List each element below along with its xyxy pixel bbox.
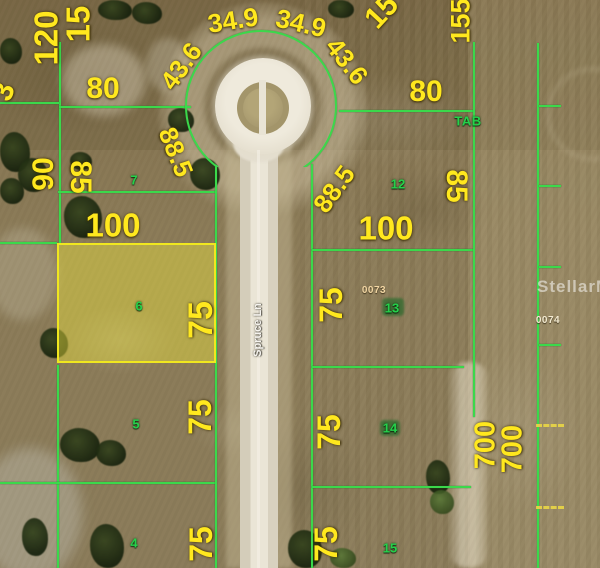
lot-tick — [539, 105, 561, 107]
lot-line-80-right — [339, 110, 475, 112]
dimension-label: 15 — [62, 6, 95, 43]
lot-line-road-west — [215, 165, 217, 568]
dimension-label: 75 — [310, 526, 342, 562]
tree — [0, 38, 22, 64]
lot-number-6: 6 — [135, 300, 142, 313]
tree — [98, 0, 132, 20]
lot-number-14: 14 — [383, 422, 397, 435]
lot-line-left-vertical-lower — [57, 365, 59, 568]
aerial-plat-map: 120 15 3 34.9 34.9 43.6 43.6 88.5 88.5 1… — [0, 0, 600, 568]
tree — [90, 524, 124, 568]
tab-marker: TAB — [454, 115, 481, 128]
parcel-id-0074: 0074 — [536, 316, 560, 326]
lot-number-13: 13 — [385, 302, 399, 315]
dimension-label: 85 — [441, 169, 471, 202]
lot-number-4: 4 — [130, 537, 137, 550]
parcel-id-0073: 0073 — [362, 286, 386, 296]
tree — [0, 178, 24, 204]
lot-line-west-edge-mid — [0, 242, 57, 244]
stellar-mls-watermark: StellarMLS — [537, 277, 600, 297]
lot-line-right-vertical-inner — [473, 42, 475, 417]
lot-number-12: 12 — [391, 178, 405, 191]
lot-tick — [539, 266, 561, 268]
lot-line-lot5-bottom — [0, 482, 216, 484]
dimension-label: 75 — [184, 301, 218, 339]
dimension-label: 155 — [448, 0, 475, 44]
lot-number-7: 7 — [130, 174, 137, 187]
dimension-label: 700 — [499, 425, 528, 473]
lot-line-80-left — [59, 106, 191, 108]
tree — [430, 490, 454, 514]
dimension-label: 120 — [30, 10, 63, 65]
dimension-label: 75 — [313, 414, 345, 450]
dimension-label: 85 — [65, 160, 95, 193]
street-name-label: Spruce Ln — [252, 303, 264, 357]
lot-line-lot13-bottom — [312, 366, 464, 368]
tree — [96, 440, 126, 466]
dimension-label: 75 — [184, 399, 216, 435]
lot-tick — [539, 344, 561, 346]
tree — [22, 518, 48, 556]
survey-dash-mark — [536, 424, 564, 427]
lot-number-15: 15 — [383, 542, 397, 555]
dimension-label: 80 — [86, 74, 119, 104]
lot-line-lot12-bottom — [312, 249, 474, 251]
dimension-label: 80 — [409, 77, 442, 107]
lot-tick — [539, 185, 561, 187]
road-centerline — [257, 150, 260, 568]
lot-line-right-vertical-outer — [537, 43, 539, 568]
dimension-label: 34.9 — [206, 3, 260, 37]
dimension-label: 90 — [29, 157, 59, 190]
lot-number-5: 5 — [132, 418, 139, 431]
tree — [60, 428, 100, 462]
dimension-label: 100 — [358, 212, 413, 245]
lot-line-left-vertical-upper — [59, 42, 61, 243]
tree — [132, 2, 162, 24]
dimension-label: 75 — [185, 526, 217, 562]
survey-dash-mark — [536, 506, 564, 509]
lot-line-lot14-bottom — [312, 486, 471, 488]
tree — [328, 0, 354, 18]
tree — [426, 460, 450, 494]
dimension-label: 100 — [85, 209, 140, 242]
dimension-label: 75 — [315, 287, 347, 323]
